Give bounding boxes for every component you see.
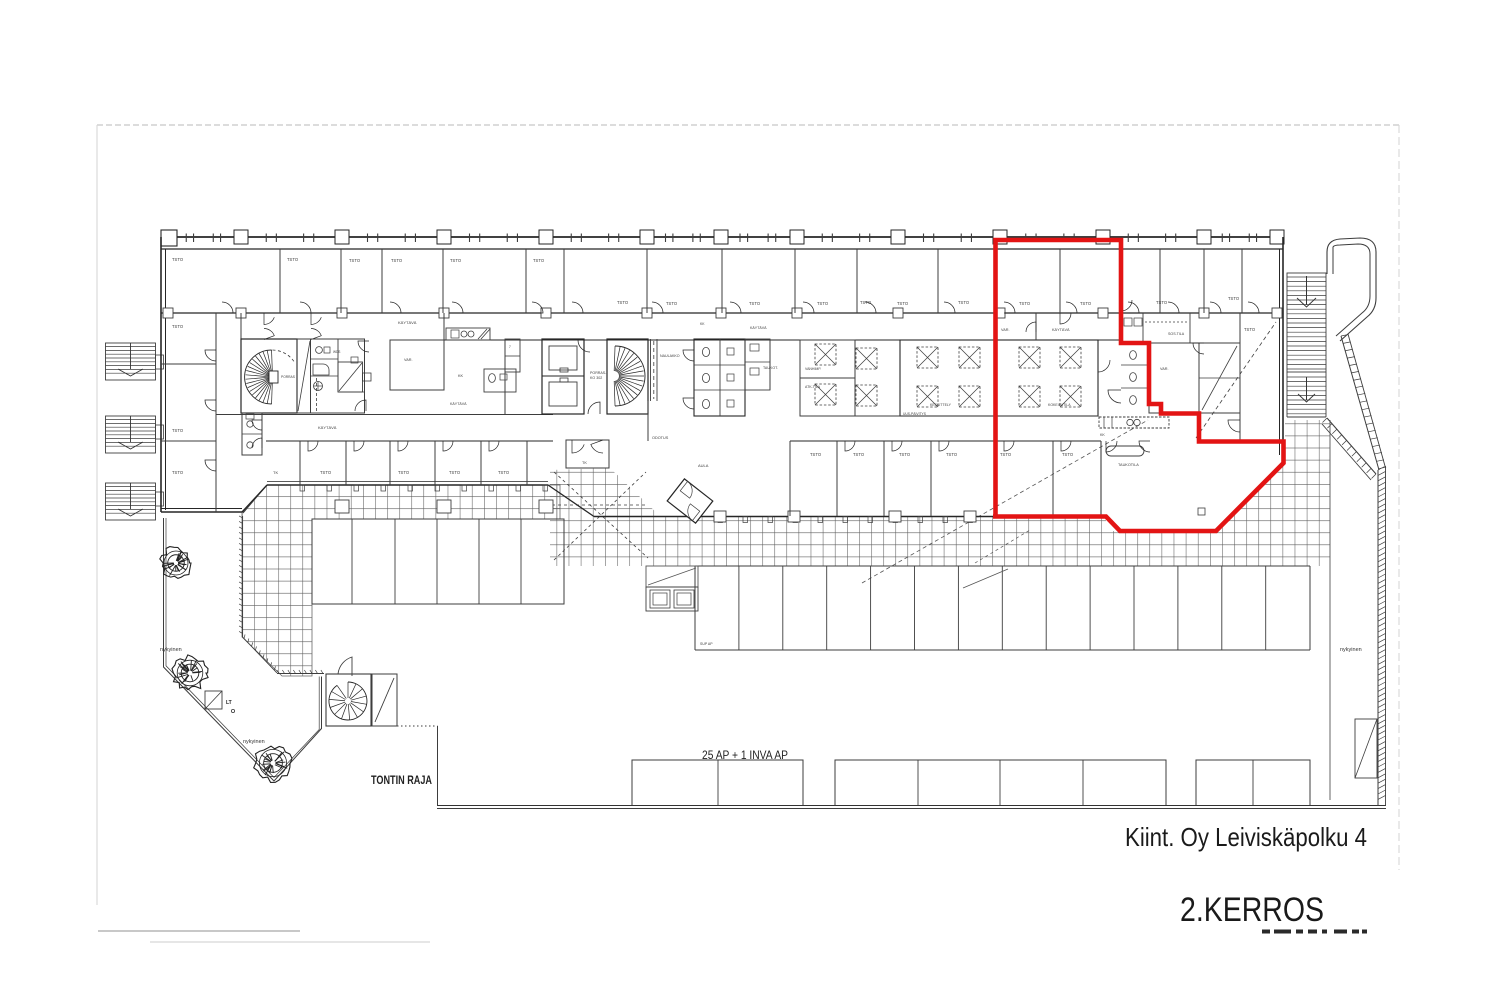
svg-text:nykyinen: nykyinen (243, 739, 265, 745)
svg-text:TSTO: TSTO (958, 300, 970, 305)
svg-text:KÄYTÄVÄ: KÄYTÄVÄ (318, 425, 337, 430)
svg-text:KESKITTELY: KESKITTELY (930, 403, 952, 407)
svg-text:TONTIN RAJA: TONTIN RAJA (371, 775, 432, 787)
svg-text:KK: KK (458, 374, 464, 378)
svg-text:TSTO: TSTO (946, 452, 958, 457)
svg-text:TSTO: TSTO (398, 470, 410, 475)
svg-text:UUS-PÄIVITYS: UUS-PÄIVITYS (903, 412, 927, 416)
svg-text:Kiint. Oy Leiviskäpolku 4: Kiint. Oy Leiviskäpolku 4 (1125, 822, 1367, 852)
svg-text:SUP AP: SUP AP (700, 642, 713, 646)
svg-text:KÄYTÄVÄ: KÄYTÄVÄ (750, 326, 767, 330)
svg-text:ATK-TILA: ATK-TILA (805, 385, 821, 389)
svg-text:TSTO: TSTO (449, 470, 461, 475)
svg-text:VAR.: VAR. (1001, 328, 1010, 332)
svg-text:TSTO: TSTO (498, 470, 510, 475)
svg-text:TSTO: TSTO (817, 301, 829, 306)
svg-text:SOS.TILA: SOS.TILA (1168, 332, 1185, 336)
svg-text:nykyinen: nykyinen (1340, 647, 1362, 653)
svg-text:TSTO: TSTO (810, 452, 822, 457)
svg-text:TSTO: TSTO (172, 470, 184, 475)
svg-text:TK: TK (273, 470, 278, 475)
svg-text:TSTO: TSTO (533, 258, 545, 263)
svg-text:TSTO: TSTO (287, 257, 299, 262)
svg-text:WDS: WDS (333, 350, 340, 354)
svg-text:ODOTUS: ODOTUS (652, 436, 669, 440)
svg-text:TK: TK (582, 461, 587, 465)
svg-text:TSTO: TSTO (391, 258, 403, 263)
svg-text:7: 7 (509, 345, 511, 349)
svg-text:TSTO: TSTO (349, 258, 361, 263)
svg-text:PORRAS: PORRAS (281, 375, 296, 379)
svg-text:TSTO: TSTO (320, 470, 332, 475)
svg-text:TSTO: TSTO (1019, 301, 1031, 306)
svg-text:PORRAS-: PORRAS- (590, 371, 607, 375)
svg-text:KÄYTÄVÄ: KÄYTÄVÄ (1052, 328, 1070, 332)
svg-text:NAULAKKO: NAULAKKO (660, 354, 680, 358)
svg-text:VAR.: VAR. (404, 358, 413, 362)
svg-text:nykyinen: nykyinen (160, 647, 182, 653)
svg-text:TSTO: TSTO (1062, 452, 1074, 457)
svg-text:KK: KK (700, 322, 705, 326)
svg-text:KÄYTÄVÄ: KÄYTÄVÄ (450, 402, 467, 406)
svg-text:KOKEILUTILA: KOKEILUTILA (1048, 403, 1071, 407)
svg-text:TAUKOTILA: TAUKOTILA (1118, 463, 1139, 467)
svg-text:KO 302: KO 302 (590, 376, 602, 380)
svg-text:TSTO: TSTO (749, 301, 761, 306)
svg-text:TSTO: TSTO (172, 428, 184, 433)
svg-text:TSTO: TSTO (1156, 300, 1168, 305)
svg-text:TSTO: TSTO (666, 301, 678, 306)
svg-text:TSTO: TSTO (1244, 327, 1256, 332)
svg-text:KK: KK (1100, 433, 1105, 437)
svg-text:TSTO: TSTO (1000, 452, 1012, 457)
svg-text:TSTO: TSTO (172, 257, 184, 262)
svg-text:VAR.: VAR. (1160, 367, 1169, 371)
svg-text:TSTO: TSTO (172, 324, 184, 329)
svg-text:VANHIMP.: VANHIMP. (805, 367, 821, 371)
svg-text:TSTO: TSTO (1080, 301, 1092, 306)
svg-text:AULA: AULA (698, 463, 709, 468)
svg-text:TSTO: TSTO (853, 452, 865, 457)
svg-text:2.KERROS: 2.KERROS (1180, 891, 1324, 929)
svg-text:TSTO: TSTO (897, 301, 909, 306)
svg-text:25 AP + 1 INVA AP: 25 AP + 1 INVA AP (702, 750, 788, 762)
svg-text:TSTO: TSTO (617, 300, 629, 305)
svg-text:KÄYTÄVÄ: KÄYTÄVÄ (398, 320, 417, 325)
svg-text:TSTO: TSTO (1228, 296, 1240, 301)
svg-text:LT: LT (226, 700, 232, 706)
svg-text:TAUKOT.: TAUKOT. (763, 366, 778, 370)
svg-text:TSTO: TSTO (860, 300, 872, 305)
svg-text:TSTO: TSTO (450, 258, 462, 263)
svg-text:TSTO: TSTO (899, 452, 911, 457)
